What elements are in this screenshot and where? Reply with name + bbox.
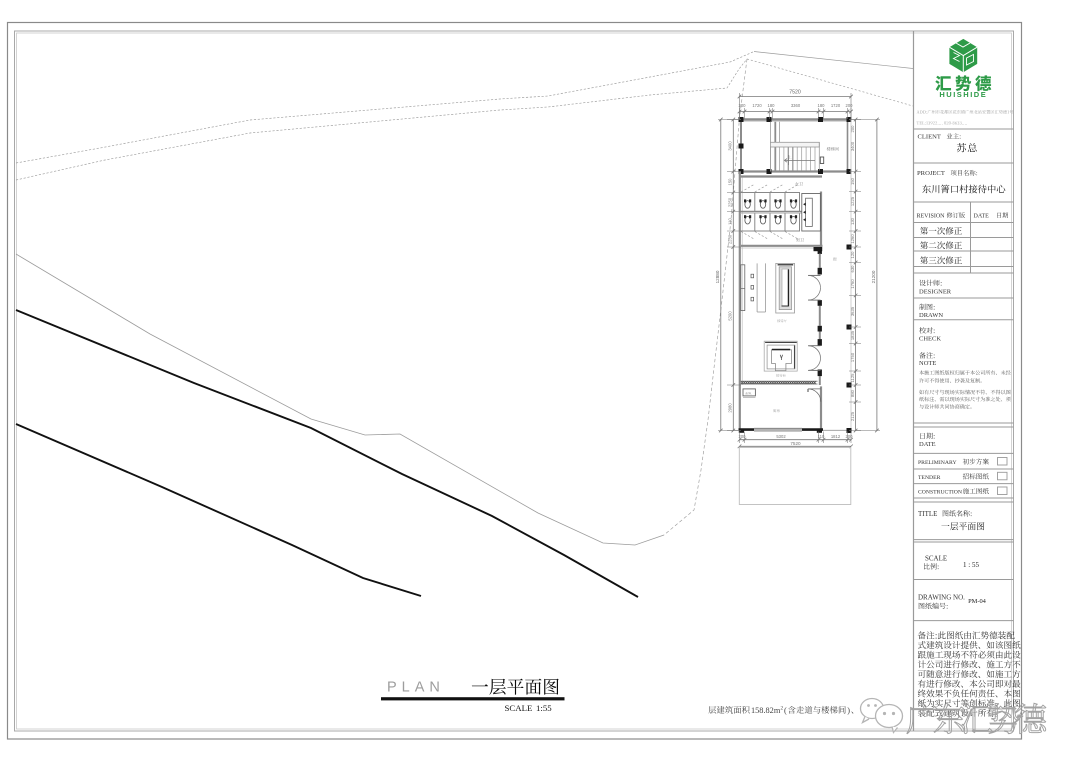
svg-text:DRAWN: DRAWN [919,312,943,319]
svg-text:SCALE: SCALE [925,555,947,563]
svg-text:150: 150 [728,178,733,186]
svg-text:3635: 3635 [850,306,855,316]
svg-text:1:55: 1:55 [536,703,552,713]
svg-text:TENDER: TENDER [918,475,941,481]
svg-text:DRAWING NO.: DRAWING NO. [918,594,965,602]
svg-text:1812: 1812 [831,434,841,439]
svg-text:1760: 1760 [850,279,855,289]
svg-text:2250: 2250 [728,197,733,207]
svg-text:180: 180 [768,103,776,108]
svg-text:NOTE: NOTE [919,360,936,367]
svg-text:200: 200 [850,125,855,133]
svg-text:PRELIMINARY: PRELIMINARY [918,460,957,466]
svg-text:130: 130 [850,217,855,225]
svg-text:PLAN: PLAN [387,680,445,696]
svg-text:CHECK: CHECK [919,336,941,343]
svg-text:REVISION: REVISION [917,214,946,220]
svg-text:5302: 5302 [776,434,786,439]
svg-text:DESIGNER: DESIGNER [919,289,952,296]
svg-text:DATE: DATE [919,441,936,448]
svg-text:2980: 2980 [728,403,733,413]
svg-text:200: 200 [739,434,747,439]
svg-text:110: 110 [818,434,825,439]
svg-text:7520: 7520 [790,441,801,446]
svg-text:3360: 3360 [791,103,801,108]
svg-text:1225: 1225 [850,196,855,206]
svg-text:PROJECT: PROJECT [917,170,945,177]
svg-text:120: 120 [850,251,855,259]
svg-text:200: 200 [846,434,854,439]
svg-text:200: 200 [739,103,747,108]
svg-text:1 : 55: 1 : 55 [963,561,979,569]
svg-text:CONSTRUCTION: CONSTRUCTION [918,490,962,496]
svg-text:(: ( [784,706,787,715]
svg-text:PM-04: PM-04 [968,598,987,605]
svg-text:1750: 1750 [850,352,855,362]
svg-text:7520: 7520 [789,90,801,96]
svg-text:12880: 12880 [715,270,720,283]
svg-text:1720: 1720 [831,103,841,108]
svg-text:110: 110 [728,217,733,224]
svg-text:3400: 3400 [728,141,733,151]
svg-text:TITLE: TITLE [918,510,937,518]
svg-text:3400: 3400 [850,141,855,151]
svg-text:180: 180 [818,103,826,108]
svg-text:21200: 21200 [871,270,876,283]
svg-text:5200: 5200 [728,311,733,321]
svg-text:SCALE: SCALE [505,703,533,713]
svg-text:HUISHIDE: HUISHIDE [939,90,987,99]
svg-text:1125: 1125 [850,373,855,383]
svg-text:2230: 2230 [728,234,733,244]
svg-text:1260: 1260 [850,234,855,244]
svg-text:150: 150 [850,177,855,185]
svg-text:): ) [847,706,850,715]
svg-text:2125: 2125 [850,411,855,421]
svg-text:630: 630 [850,265,855,273]
svg-text:200: 200 [846,103,854,108]
svg-text:1835: 1835 [850,330,855,340]
svg-text:880: 880 [850,389,855,397]
svg-text:1720: 1720 [752,103,762,108]
svg-text:CLIENT: CLIENT [918,134,941,141]
svg-text:DATE: DATE [974,214,990,220]
svg-text:158.82m: 158.82m [751,706,781,715]
